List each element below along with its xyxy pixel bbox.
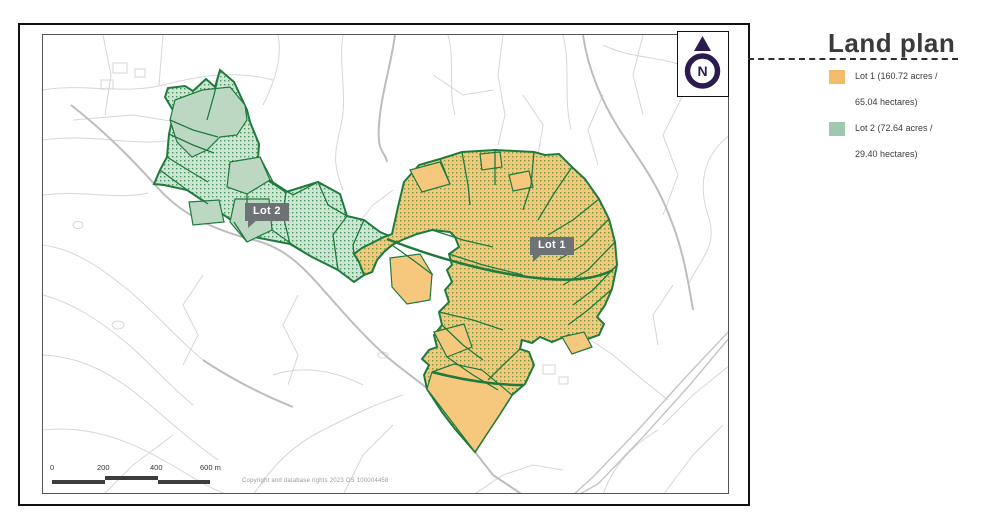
- legend-item-lot2: Lot 2 (72.64 acres / 29.40 hectares): [829, 122, 969, 161]
- lot1-area: [354, 150, 617, 452]
- scale-label-400: 400: [150, 463, 163, 472]
- legend: Lot 1 (160.72 acres / 65.04 hectares) Lo…: [829, 70, 969, 174]
- north-arrow-icon: N: [678, 32, 727, 95]
- map-frame: Lot 2 Lot 1 0 200 400 600 m Copyright an…: [18, 23, 750, 506]
- scale-bar: 0 200 400 600 m: [52, 463, 222, 485]
- scale-bar-segments: [52, 476, 210, 485]
- scale-label-600: 600 m: [200, 463, 221, 472]
- land-plan-map: [43, 35, 729, 494]
- copyright-notice: Copyright and database rights 2023 OS 10…: [242, 478, 389, 484]
- lot1-legend-label: Lot 1 (160.72 acres / 65.04 hectares): [855, 70, 938, 109]
- legend-item-lot1: Lot 1 (160.72 acres / 65.04 hectares): [829, 70, 969, 109]
- lot2-label-text: Lot 2: [253, 205, 281, 217]
- title-separator: [748, 58, 958, 60]
- scale-label-0: 0: [50, 463, 54, 472]
- lot1-legend-line2: 65.04 hectares): [855, 97, 918, 107]
- lot1-label-text: Lot 1: [538, 239, 566, 251]
- compass-n-letter: N: [697, 63, 707, 79]
- scale-segment-3: [158, 480, 210, 484]
- scale-segment-1: [52, 480, 105, 484]
- lot2-area: [154, 70, 392, 282]
- scale-label-200: 200: [97, 463, 110, 472]
- map-canvas: Lot 2 Lot 1 0 200 400 600 m Copyright an…: [42, 34, 729, 494]
- lot2-legend-label: Lot 2 (72.64 acres / 29.40 hectares): [855, 122, 933, 161]
- page-title: Land plan: [828, 28, 955, 59]
- lot1-callout-label: Lot 1: [530, 237, 574, 255]
- north-arrow: N: [677, 31, 729, 97]
- lot2-legend-line2: 29.40 hectares): [855, 149, 918, 159]
- lot2-swatch: [829, 122, 845, 136]
- lot1-legend-line1: Lot 1 (160.72 acres /: [855, 71, 938, 81]
- scale-segment-2: [105, 476, 158, 480]
- lot2-legend-line1: Lot 2 (72.64 acres /: [855, 123, 933, 133]
- lot2-callout-label: Lot 2: [245, 203, 289, 221]
- lot1-swatch: [829, 70, 845, 84]
- background-field-lines: [43, 35, 729, 494]
- land-plan-page: Lot 2 Lot 1 0 200 400 600 m Copyright an…: [0, 0, 981, 532]
